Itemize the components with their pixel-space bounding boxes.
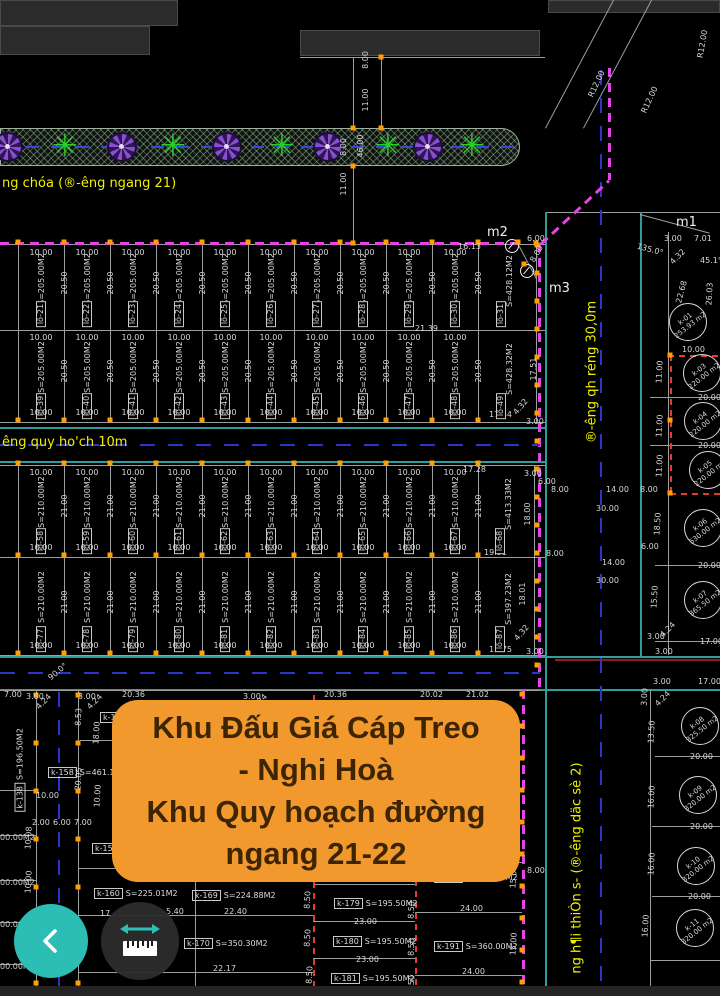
dimension-label: 8.50: [306, 966, 315, 984]
dimension-label: 46.00: [357, 135, 365, 158]
node-marker: [108, 651, 113, 656]
cad-line: [0, 330, 545, 331]
dimension-label: 20.50: [153, 272, 161, 295]
building-block: [300, 30, 540, 56]
dimension-label: 20.50: [337, 360, 345, 383]
dimension-label: 11.00: [655, 454, 664, 477]
dimension-label: 10.00: [168, 544, 191, 552]
parcel-label: k-179S=195.50M2: [334, 898, 418, 909]
dimension-label: 10.00: [398, 249, 421, 257]
bottom-bar: [0, 986, 720, 996]
dimension-label: 17.00: [700, 638, 720, 646]
dimension-label: 4.32: [512, 398, 530, 417]
plot-area-label: S=205.00M2: [38, 341, 46, 393]
dimension-label: 45.1°: [700, 257, 720, 265]
parcel-label: k-170S=350.30M2: [184, 938, 268, 949]
dimension-label: 8.00: [640, 486, 658, 494]
node-marker: [351, 164, 356, 169]
dimension-label: 20.50: [429, 272, 437, 295]
dimension-label: 8.53: [75, 708, 84, 726]
plot-area-label: S=210.00M2: [452, 476, 460, 528]
cad-line: [0, 557, 545, 558]
plot-area-label: S=210.00M2: [176, 571, 184, 623]
node-marker: [338, 418, 343, 423]
cad-line: [0, 242, 518, 245]
node-marker: [520, 980, 525, 985]
node-marker: [200, 461, 205, 466]
node-marker: [430, 461, 435, 466]
dimension-label: 10.00: [306, 409, 329, 417]
dimension-label: 10.00: [352, 469, 375, 477]
node-marker: [668, 353, 673, 358]
cad-line: [0, 690, 540, 691]
dimension-label: 10.00: [214, 334, 237, 342]
dimension-label: 10.00: [306, 469, 329, 477]
dimension-label: 18.00: [524, 503, 532, 526]
node-marker: [76, 885, 81, 890]
plot-id-label: lô-26: [266, 301, 276, 327]
node-marker: [668, 418, 673, 423]
dimension-label: 10.00: [682, 346, 705, 354]
tree-star-icon: ✳: [265, 128, 299, 164]
node-marker: [16, 240, 21, 245]
node-marker: [16, 651, 21, 656]
title-overlay: Khu Đấu Giá Cáp Treo - Nghi Hoà Khu Quy …: [112, 700, 520, 882]
parcel-label: k-169S=224.88M2: [192, 890, 276, 901]
dimension-label: 21.00: [61, 495, 69, 518]
plot-area-label: S=205.00M2: [38, 253, 46, 305]
dimension-label: 10.00: [398, 544, 421, 552]
node-marker: [351, 126, 356, 131]
cad-line: [670, 355, 672, 493]
plot-id-label: lô-29: [404, 301, 414, 327]
dimension-label: 10.00: [168, 334, 191, 342]
dimension-label: 21.00: [475, 495, 483, 518]
dimension-label: 21.00: [429, 590, 437, 613]
cad-line: [545, 0, 616, 128]
node-marker: [16, 418, 21, 423]
dimension-label: 21.00: [107, 590, 115, 613]
dimension-label: 16.00: [641, 914, 650, 937]
cad-line: [0, 422, 545, 423]
node-marker: [292, 553, 297, 558]
dimension-label: 18.01: [519, 583, 527, 606]
street-name-label: ng chóa (®-êng ngang 21): [2, 177, 176, 190]
cad-line: [381, 57, 382, 128]
dimension-label: 10.00: [76, 544, 99, 552]
dimension-label: 10.00: [260, 642, 283, 650]
cad-line: [555, 659, 720, 661]
dimension-label: 8.50: [304, 891, 313, 909]
dimension-label: 10.00: [352, 249, 375, 257]
node-marker: [522, 262, 527, 267]
dimension-label: 18.50: [653, 512, 662, 535]
node-marker: [246, 461, 251, 466]
parcel-circle: k-01253.93 m2: [669, 303, 707, 341]
dimension-label: 20.50: [61, 272, 69, 295]
dimension-label: 10.00: [306, 249, 329, 257]
dimension-label: 23.00: [356, 956, 379, 964]
plot-area-label: S=205.00M2: [360, 341, 368, 393]
node-marker: [476, 651, 481, 656]
node-marker: [62, 651, 67, 656]
node-marker: [246, 418, 251, 423]
plot-id-label: lô-27: [312, 301, 322, 327]
dimension-label: 10.00: [93, 784, 102, 807]
node-marker: [16, 461, 21, 466]
dimension-label: 22.17: [213, 965, 236, 973]
dimension-label: 20.00: [690, 823, 713, 831]
dimension-label: 2.00: [32, 819, 50, 827]
dimension-label: 10.00: [76, 469, 99, 477]
dimension-label: 10.00: [260, 409, 283, 417]
measure-button[interactable]: [101, 902, 179, 980]
node-marker: [668, 491, 673, 496]
street-name-label: ng h¶i thiÒn s- (®-êng däc sè 2): [571, 762, 584, 973]
plot-id-label: lô-23: [128, 301, 138, 327]
dimension-label: 6.00: [527, 235, 545, 243]
plot-id-label: lô-24: [174, 301, 184, 327]
node-marker: [535, 607, 540, 612]
dimension-label: 4.32: [513, 624, 531, 643]
node-marker: [516, 240, 521, 245]
dimension-label: 8.00: [362, 51, 370, 69]
flower-icon: [413, 132, 443, 162]
dimension-label: 10.00: [214, 642, 237, 650]
plot-area-label: S=210.00M2: [268, 476, 276, 528]
cad-line: [0, 672, 540, 674]
plot-area-label: S=210.00M2: [222, 476, 230, 528]
plot-area-label: S=428.32M2: [506, 343, 514, 395]
node-marker: [338, 240, 343, 245]
node-marker: [76, 981, 81, 986]
dimension-label: m2: [487, 226, 508, 239]
node-marker: [384, 461, 389, 466]
plot-id-label: lô-87: [495, 626, 505, 652]
parcel-label: k-180S=195.50M2: [333, 936, 417, 947]
dimension-label: 10.00: [30, 334, 53, 342]
dimension-label: 15.50: [650, 585, 659, 608]
dimension-label: 10.00: [122, 544, 145, 552]
node-marker: [351, 241, 356, 246]
plot-area-label: S=205.00M2: [314, 253, 322, 305]
cad-line: [650, 960, 720, 961]
dimension-label: 10.00: [352, 334, 375, 342]
back-chevron-icon: [36, 926, 66, 956]
node-marker: [338, 553, 343, 558]
plot-area-label: S=210.00M2: [130, 476, 138, 528]
node-marker: [535, 271, 540, 276]
dimension-label: 4.32: [669, 248, 687, 266]
dimension-label: m3: [549, 282, 570, 295]
dimension-label: 22.40: [224, 908, 247, 916]
node-marker: [430, 418, 435, 423]
dimension-label: 3.00: [653, 678, 671, 686]
node-marker: [535, 383, 540, 388]
dimension-label: 17.00: [698, 678, 720, 686]
plot-area-label: S=205.00M2: [222, 253, 230, 305]
node-marker: [430, 651, 435, 656]
node-marker: [34, 981, 39, 986]
plot-boundary: [18, 245, 19, 330]
cad-line: [640, 214, 710, 234]
node-marker: [535, 299, 540, 304]
node-marker: [292, 651, 297, 656]
plot-area-label: S=205.00M2: [360, 253, 368, 305]
node-marker: [535, 439, 540, 444]
dimension-label: 24.00: [462, 968, 485, 976]
parcel-label: k-181S=195.50M2: [331, 973, 415, 984]
dimension-label: 20.36: [324, 691, 347, 699]
plot-area-label: S=205.00M2: [406, 253, 414, 305]
dimension-label: 8.00: [340, 138, 348, 156]
dimension-label: 23.00: [354, 918, 377, 926]
dimension-label: 7.00: [4, 691, 22, 699]
dimension-label: 8.00: [546, 550, 564, 558]
dimension-label: 10.00: [76, 334, 99, 342]
cad-line: [534, 465, 535, 655]
dimension-label: 21.00: [337, 590, 345, 613]
plot-area-label: S=205.00M2: [176, 253, 184, 305]
plot-area-label: S=205.00M2: [314, 341, 322, 393]
dimension-label: 10.00: [398, 469, 421, 477]
dimension-label: 22.68: [675, 280, 689, 304]
dimension-label: 11.00: [340, 173, 348, 196]
plot-area-label: S=205.00M2: [130, 253, 138, 305]
dimension-label: 14.00: [606, 486, 629, 494]
parcel-label: k-191S=360.00M2: [434, 941, 518, 952]
node-marker: [154, 418, 159, 423]
dimension-label: 10.00: [444, 469, 467, 477]
plot-area-label: S=210.00M2: [314, 476, 322, 528]
plot-area-label: S=205.00M2: [84, 341, 92, 393]
dimension-label: 10.00: [122, 249, 145, 257]
cad-line: [0, 427, 545, 429]
dimension-label: 20.00: [688, 893, 711, 901]
node-marker: [520, 692, 525, 697]
dimension-label: 20.02: [420, 691, 443, 699]
dimension-label: 18.00: [92, 721, 101, 744]
plot-id-label: lô-28: [358, 301, 368, 327]
dimension-label: 20.00: [698, 442, 720, 450]
node-marker: [520, 788, 525, 793]
dimension-label: 10.00: [168, 469, 191, 477]
dimension-label: 11.00: [655, 414, 664, 437]
node-marker: [379, 55, 384, 60]
dimension-label: R12.00: [587, 69, 606, 98]
dimension-label: 10.00: [122, 409, 145, 417]
node-marker: [520, 884, 525, 889]
plot-area-label: S=210.00M2: [176, 476, 184, 528]
node-marker: [108, 553, 113, 558]
dimension-label: 20.50: [245, 360, 253, 383]
plot-boundary: [18, 330, 19, 422]
parcel-circle: k-05220.00 m2: [689, 451, 720, 489]
node-marker: [200, 418, 205, 423]
dimension-label: 30.00: [596, 577, 619, 585]
dimension-label: 16.00: [647, 785, 656, 808]
dimension-label: 3.00: [526, 418, 544, 426]
plot-area-label: S=413.33M2: [505, 478, 513, 530]
dimension-label: 20.00: [690, 753, 713, 761]
node-marker: [62, 418, 67, 423]
cad-line: [670, 493, 720, 495]
node-marker: [154, 461, 159, 466]
cad-line: [78, 972, 313, 973]
node-marker: [108, 240, 113, 245]
dimension-label: 21.00: [107, 495, 115, 518]
dimension-label: 11.00: [362, 89, 370, 112]
dimension-label: 20.50: [291, 272, 299, 295]
overlay-line-3: Khu Quy hoạch đường: [112, 791, 520, 833]
dimension-label: R12.00: [697, 29, 710, 58]
dimension-label: 10.00: [122, 334, 145, 342]
node-marker: [520, 916, 525, 921]
street-name-label: êng quy ho'ch 10m: [2, 436, 127, 449]
flower-icon: [212, 132, 242, 162]
building-block: [0, 26, 150, 55]
plot-id-label: lô-21: [36, 301, 46, 327]
node-marker: [16, 553, 21, 558]
cad-line: [0, 656, 720, 658]
dimension-label: 10.00: [30, 469, 53, 477]
dimension-label: 10.00: [444, 409, 467, 417]
node-marker: [154, 240, 159, 245]
node-marker: [535, 411, 540, 416]
dimension-label: 21.00: [245, 495, 253, 518]
dimension-label: 20.50: [475, 360, 483, 383]
node-marker: [62, 240, 67, 245]
dimension-label: 8.00: [529, 244, 545, 263]
node-marker: [535, 495, 540, 500]
dimension-label: 10.00: [30, 642, 53, 650]
overlay-line-1: Khu Đấu Giá Cáp Treo: [112, 707, 520, 749]
plot-id-label: lô-49: [496, 393, 506, 419]
dimension-label: 21.00: [153, 590, 161, 613]
dimension-label: 20.00: [698, 394, 720, 402]
dimension-label: 10.00: [444, 544, 467, 552]
dimension-label: 10.00: [214, 544, 237, 552]
parcel-circle: k-04220.00 m2: [684, 402, 720, 440]
dimension-label: 20.50: [383, 360, 391, 383]
tree-star-icon: ✳: [48, 128, 82, 164]
cad-line: [640, 212, 642, 656]
plot-area-label: S=210.00M2: [268, 571, 276, 623]
node-marker: [384, 553, 389, 558]
overlay-line-4: ngang 21-22: [112, 833, 520, 875]
node-marker: [520, 820, 525, 825]
dimension-label: 21.00: [337, 495, 345, 518]
dimension-label: 21.00: [153, 495, 161, 518]
node-marker: [246, 553, 251, 558]
plot-area-label: S=210.00M2: [84, 571, 92, 623]
tree-star-icon: ✳: [371, 128, 405, 164]
node-marker: [535, 579, 540, 584]
parcel-circle: k-11320.00 m2: [676, 909, 714, 947]
plot-id-label: lô-25: [220, 301, 230, 327]
dimension-label: 10.00: [444, 642, 467, 650]
node-marker: [535, 551, 540, 556]
dimension-label: 21.00: [245, 590, 253, 613]
node-marker: [34, 741, 39, 746]
dimension-label: 10.00: [122, 642, 145, 650]
dimension-label: 21.39: [415, 325, 438, 333]
plot-area-label: S=205.00M2: [268, 253, 276, 305]
dimension-label: 10.00: [352, 642, 375, 650]
node-marker: [384, 240, 389, 245]
dimension-label: 13.50: [647, 720, 656, 743]
node-marker: [338, 461, 343, 466]
dimension-label: 10.00: [168, 249, 191, 257]
plot-area-label: S=210.00M2: [314, 571, 322, 623]
back-button[interactable]: [14, 904, 88, 978]
node-marker: [200, 553, 205, 558]
street-name-label: ®-êng qh réng 30,0m: [586, 301, 599, 443]
dimension-label: 24.00: [460, 905, 483, 913]
cad-line: [600, 70, 602, 996]
dimension-label: 10.00: [398, 642, 421, 650]
dimension-label: 17.51: [530, 358, 538, 381]
parcel-circle: k-03220.00 m2: [683, 354, 720, 392]
dimension-label: 10.00: [168, 409, 191, 417]
node-marker: [520, 756, 525, 761]
cad-line: [608, 68, 611, 180]
dimension-label: 20.50: [291, 360, 299, 383]
dimension-label: 20.50: [61, 360, 69, 383]
dimension-label: 20.50: [107, 360, 115, 383]
dimension-label: 30.00: [596, 505, 619, 513]
plot-area-label: S=397.23M2: [505, 573, 513, 625]
dimension-label: 6.00: [641, 543, 659, 551]
node-marker: [62, 461, 67, 466]
node-marker: [476, 418, 481, 423]
plot-area-label: S=210.00M2: [222, 571, 230, 623]
plot-area-label: S=210.00M2: [360, 476, 368, 528]
plot-area-label: S=210.00M2: [452, 571, 460, 623]
plot-area-label: S=428.12M2: [506, 255, 514, 307]
plot-id-label: lô-22: [82, 301, 92, 327]
node-marker: [292, 461, 297, 466]
dimension-label: 10.00: [76, 642, 99, 650]
plot-area-label: S=205.00M2: [176, 341, 184, 393]
dimension-label: 10.00: [260, 544, 283, 552]
dimension-label: 10.00: [30, 249, 53, 257]
dimension-label: 10.00: [36, 792, 59, 800]
dimension-label: 21.00: [383, 590, 391, 613]
node-marker: [154, 651, 159, 656]
plot-area-label: S=205.00M2: [84, 253, 92, 305]
dimension-label: 10.00: [306, 334, 329, 342]
parcel-label: k-138S=196.50M2: [15, 728, 26, 812]
dimension-label: 10.00: [306, 544, 329, 552]
plot-area-label: S=205.00M2: [406, 341, 414, 393]
dimension-label: 10.00: [306, 642, 329, 650]
dimension-label: 21.00: [383, 495, 391, 518]
building-block: [0, 0, 178, 26]
dimension-label: 14.00: [602, 559, 625, 567]
plot-id-label: lô-30: [450, 301, 460, 327]
dimension-label: 10.00: [352, 544, 375, 552]
dimension-label: 21.00: [199, 590, 207, 613]
dimension-label: 10.00: [260, 249, 283, 257]
node-marker: [430, 240, 435, 245]
dimension-label: 21.00: [291, 495, 299, 518]
parcel-circle: k-08325.50 m2: [681, 707, 719, 745]
node-marker: [535, 663, 540, 668]
dimension-label: 21.02: [466, 691, 489, 699]
dimension-label: 10.00: [444, 334, 467, 342]
dimension-label: 8.50: [304, 929, 313, 947]
